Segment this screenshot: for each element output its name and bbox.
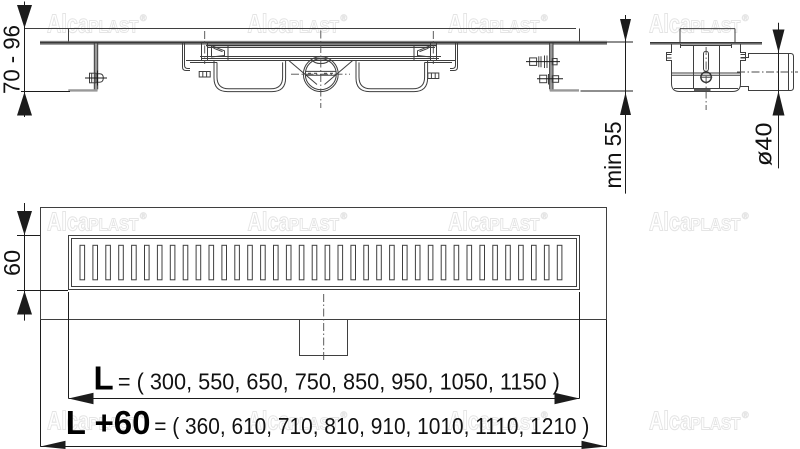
svg-text:PLAST: PLAST bbox=[490, 215, 540, 235]
svg-text:Alca: Alca bbox=[248, 9, 290, 39]
svg-text:®: ® bbox=[742, 211, 749, 221]
svg-text:ø40: ø40 bbox=[751, 123, 777, 167]
svg-text:®: ® bbox=[742, 410, 749, 420]
svg-text:Alca: Alca bbox=[47, 207, 89, 237]
svg-text:PLAST: PLAST bbox=[89, 215, 139, 235]
svg-text:Alca: Alca bbox=[649, 9, 691, 39]
svg-text:60: 60 bbox=[0, 250, 25, 276]
svg-text:®: ® bbox=[541, 211, 548, 221]
svg-text:PLAST: PLAST bbox=[289, 215, 339, 235]
svg-text:min 55: min 55 bbox=[600, 122, 626, 189]
svg-text:®: ® bbox=[140, 211, 147, 221]
svg-text:®: ® bbox=[341, 211, 348, 221]
svg-text:Alca: Alca bbox=[248, 207, 290, 237]
svg-text:®: ® bbox=[140, 13, 147, 23]
svg-text:L: L bbox=[94, 360, 114, 397]
svg-text:PLAST: PLAST bbox=[289, 17, 339, 37]
svg-text:Alca: Alca bbox=[448, 207, 490, 237]
svg-text:PLAST: PLAST bbox=[691, 215, 741, 235]
svg-text:PLAST: PLAST bbox=[691, 17, 741, 37]
svg-text:PLAST: PLAST bbox=[691, 414, 741, 434]
svg-text:= ( 360, 610, 710, 810, 910, 1: = ( 360, 610, 710, 810, 910, 1010, 1110,… bbox=[154, 413, 589, 439]
svg-text:PLAST: PLAST bbox=[490, 17, 540, 37]
svg-text:Alca: Alca bbox=[649, 207, 691, 237]
svg-text:®: ® bbox=[742, 13, 749, 23]
svg-text:®: ® bbox=[541, 13, 548, 23]
svg-text:= ( 300, 550, 650, 750, 850, 9: = ( 300, 550, 650, 750, 850, 950, 1050, … bbox=[118, 369, 560, 395]
svg-text:Alca: Alca bbox=[448, 9, 490, 39]
svg-text:®: ® bbox=[341, 13, 348, 23]
svg-text:PLAST: PLAST bbox=[89, 17, 139, 37]
svg-text:Alca: Alca bbox=[649, 406, 691, 436]
svg-text:L +60: L +60 bbox=[66, 404, 151, 441]
svg-text:70 - 96: 70 - 96 bbox=[0, 25, 25, 94]
